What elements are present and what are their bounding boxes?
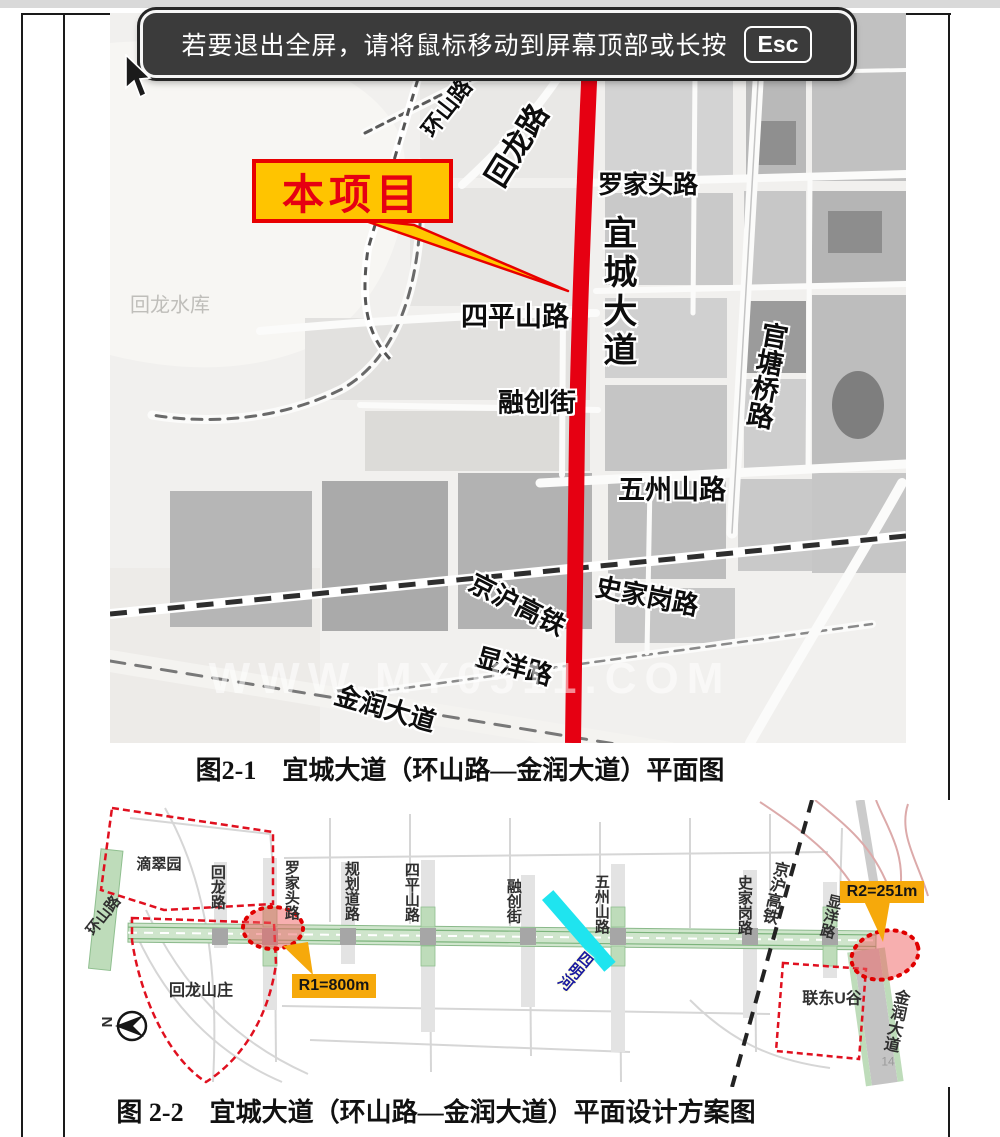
map2-label-luojiatou-road: 罗家头路	[283, 860, 299, 920]
map1-label-rongchuang-street: 融创街	[498, 389, 576, 416]
figure2-map: 滴翠园 回龙路 环山路 罗家头路 规划道路 四平山路 融创街 五州山路 四明河 …	[70, 800, 950, 1087]
map2-label-huilong-villa: 回龙山庄	[169, 984, 233, 1001]
page-border-left-outer	[21, 13, 23, 1137]
page-border-left-inner	[63, 13, 65, 1137]
fullscreen-exit-notification: 若要退出全屏，请将鼠标移动到屏幕顶部或长按 Esc	[140, 10, 854, 78]
map2-label-shijiagang-road: 史家岗路	[736, 875, 752, 935]
r1-annotation: R1=800m	[292, 974, 376, 998]
map1-label-wuzhoushan-road: 五州山路	[618, 476, 726, 504]
map2-label-rongchuang-street: 融创街	[505, 879, 521, 924]
map2-label-wuzhoushan-road: 五州山路	[593, 874, 609, 934]
figure1-map-image	[110, 13, 906, 743]
watermark: WWW.MY0511.COM	[209, 654, 732, 704]
map1-label-huilong-reservoir: 回龙水库	[130, 296, 210, 317]
r2-annotation: R2=251m	[840, 881, 924, 903]
map2-label-dicuiyuan: 滴翠园	[133, 856, 184, 874]
map1-label-yicheng-avenue: 宜城大道	[598, 215, 634, 371]
figure1-map: 本项目 环山路 回龙路 罗家头路 宜城大道 官塘桥路 回龙水库 四平山路 融创街…	[110, 13, 906, 743]
mouse-cursor-icon	[124, 54, 158, 102]
screen-top-strip	[0, 0, 1000, 8]
figure2-caption: 图 2-2 宜城大道（环山路—金润大道）平面设计方案图	[40, 1092, 832, 1129]
project-callout-label: 本项目	[282, 161, 423, 222]
notification-text: 若要退出全屏，请将鼠标移动到屏幕顶部或长按	[182, 26, 728, 62]
map2-label-liandong-u-valley: 联东U谷	[802, 992, 862, 1009]
project-callout: 本项目	[252, 159, 453, 223]
map1-label-luojiatou-road: 罗家头路	[598, 172, 698, 198]
figure2-map-image	[70, 800, 950, 1087]
map1-label-sipingshan-road: 四平山路	[461, 303, 569, 331]
map2-label-huilong-road: 回龙路	[209, 865, 225, 910]
map2-page-number: 14	[881, 1056, 894, 1069]
map2-north-label: N	[100, 1017, 116, 1028]
map2-label-planned-road: 规划道路	[343, 861, 359, 921]
map2-label-sipingshan-road: 四平山路	[403, 862, 419, 922]
figure1-caption: 图2-1 宜城大道（环山路—金润大道）平面图	[64, 750, 856, 787]
esc-key-badge: Esc	[744, 26, 813, 63]
